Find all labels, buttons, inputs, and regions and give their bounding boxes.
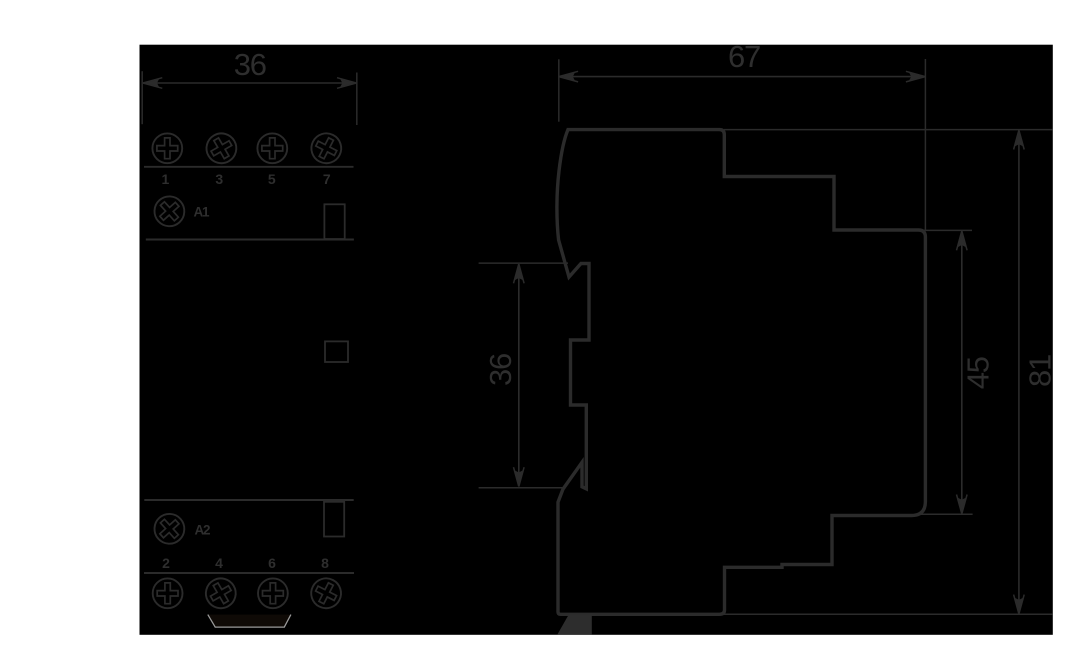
svg-text:2: 2 — [162, 555, 170, 571]
svg-text:7: 7 — [323, 171, 331, 187]
svg-text:4: 4 — [215, 555, 223, 571]
svg-text:6: 6 — [268, 555, 276, 571]
svg-text:A2: A2 — [195, 522, 211, 537]
svg-text:36: 36 — [483, 354, 518, 386]
svg-text:45: 45 — [960, 357, 995, 389]
svg-text:36: 36 — [234, 47, 266, 82]
svg-text:67: 67 — [728, 39, 760, 74]
svg-text:1: 1 — [162, 171, 170, 187]
svg-text:A1: A1 — [194, 204, 211, 219]
svg-text:3: 3 — [215, 171, 223, 187]
svg-text:5: 5 — [268, 171, 276, 187]
svg-text:81: 81 — [1023, 355, 1058, 387]
svg-text:8: 8 — [321, 555, 329, 571]
